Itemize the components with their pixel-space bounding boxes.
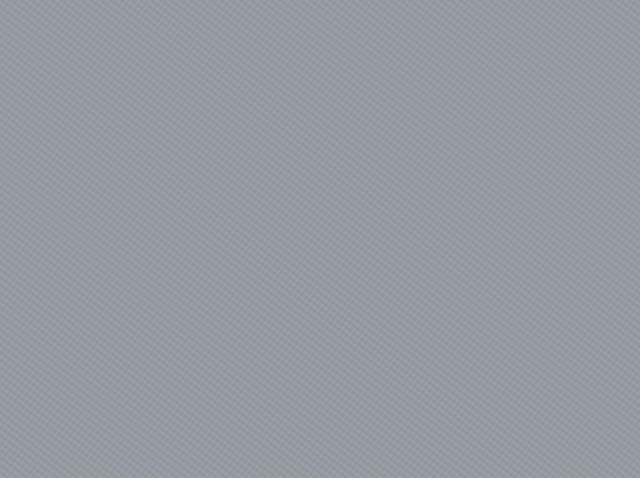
photo-noise-overlay [0,0,640,478]
photo-tint-overlay [0,0,640,478]
map-canvas[interactable] [0,0,640,478]
